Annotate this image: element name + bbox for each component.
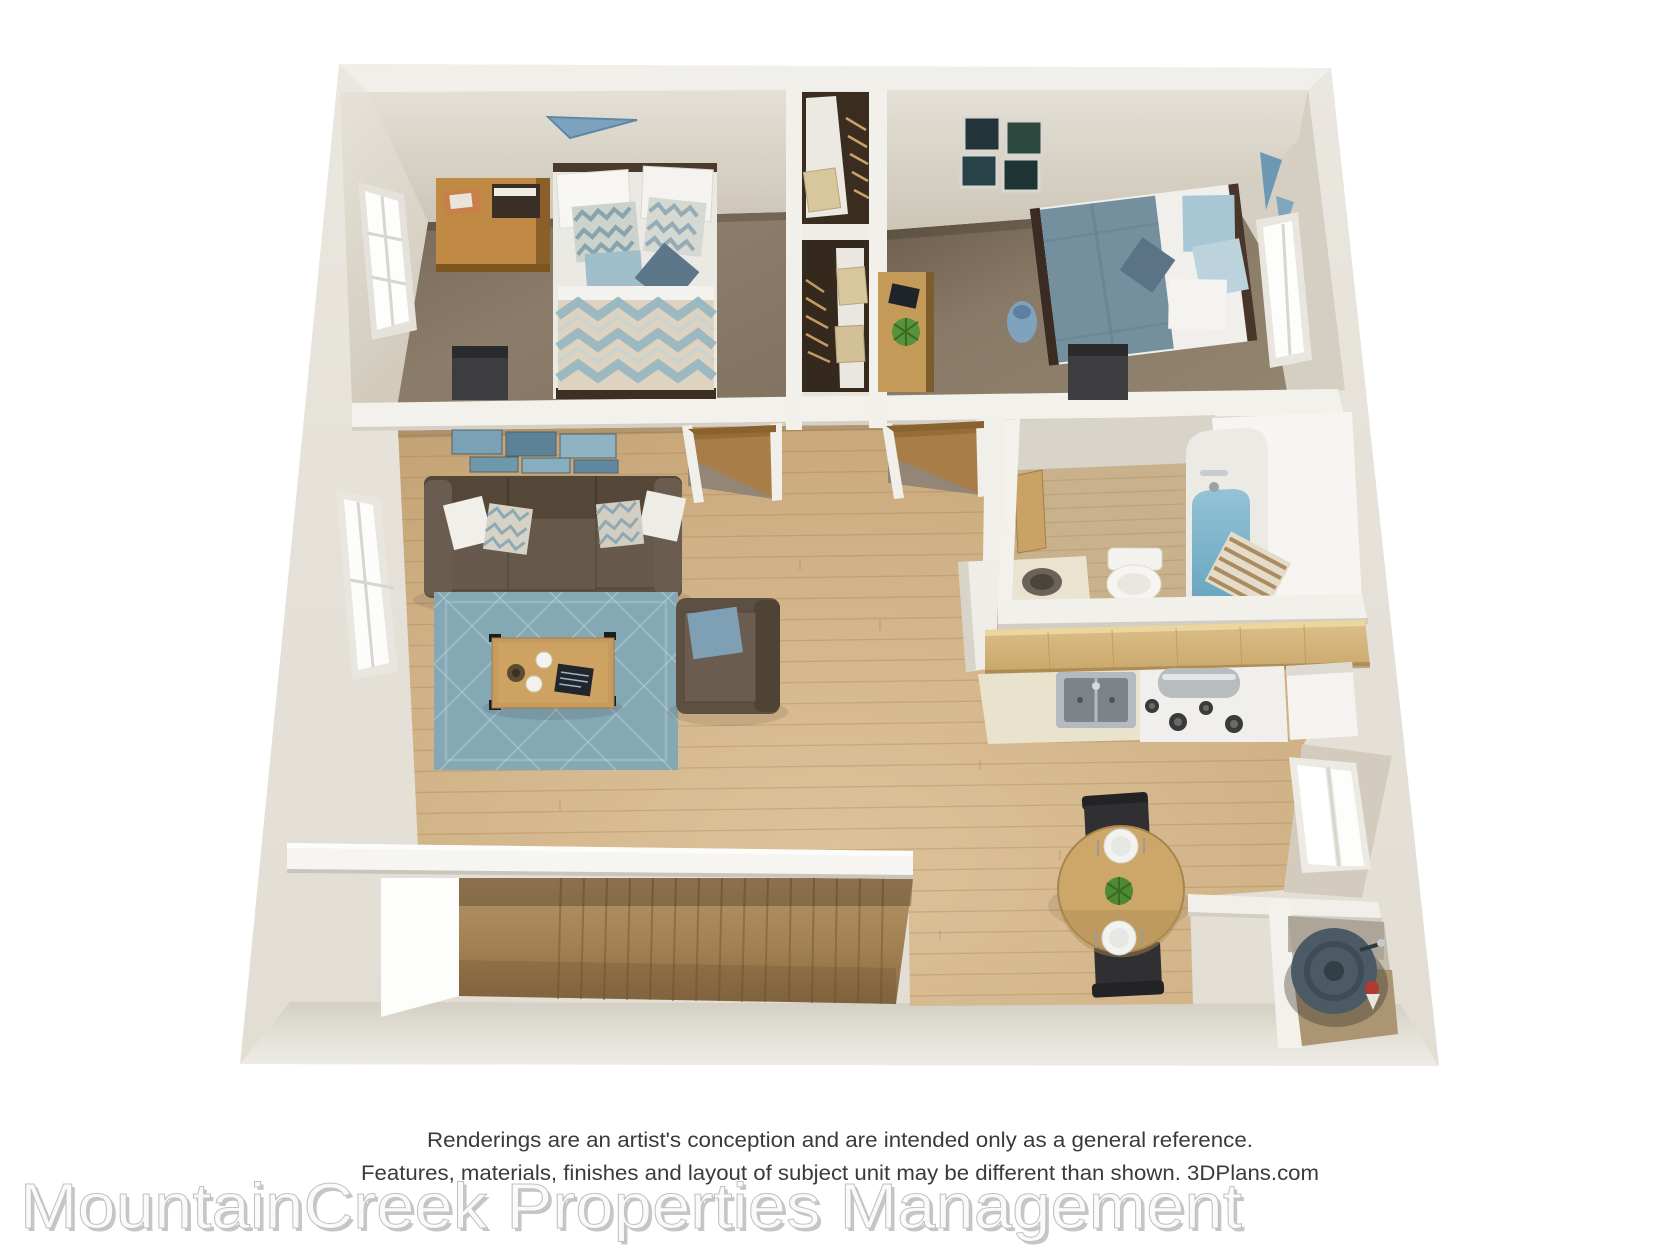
svg-text:Renderings are an artist's con: Renderings are an artist's conception an…: [427, 1128, 1253, 1152]
svg-text:MountainCreek Properties Manag: MountainCreek Properties Management: [20, 1170, 1242, 1242]
